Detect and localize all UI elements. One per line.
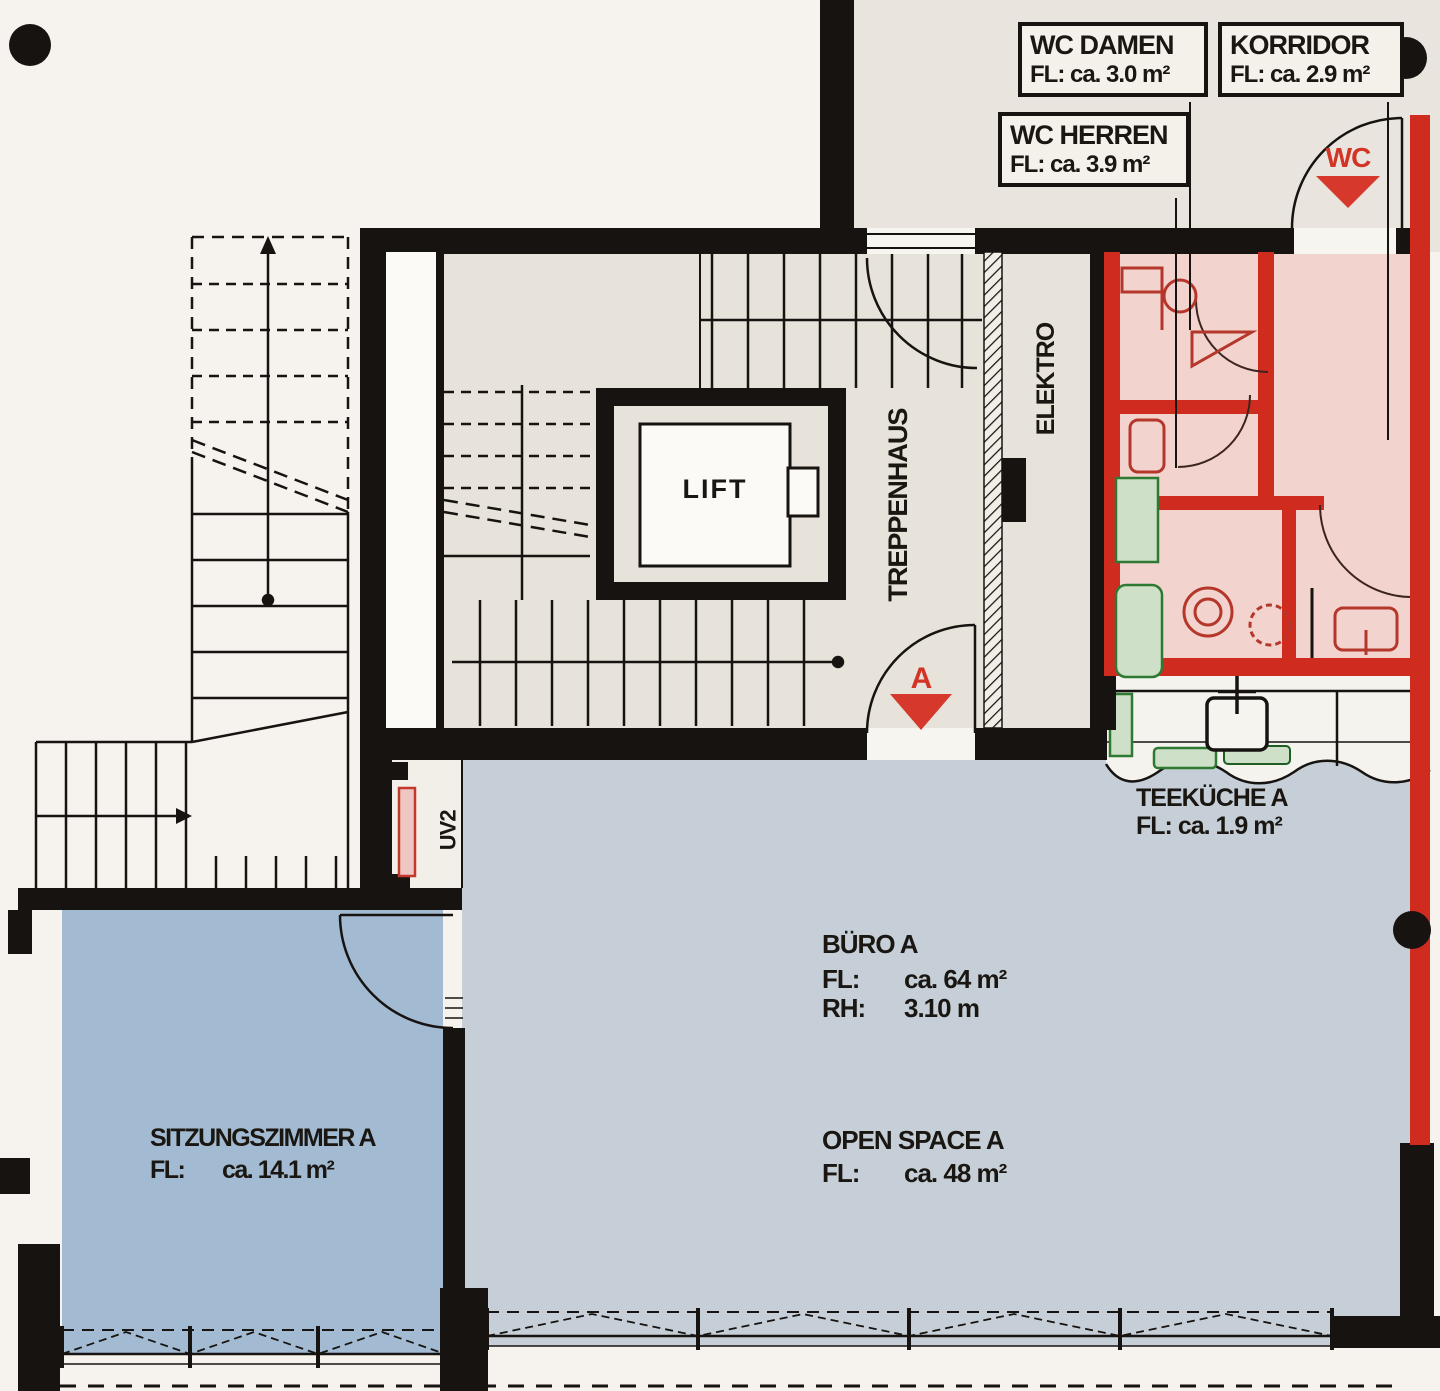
- open-space-fl-key: FL:: [822, 1159, 904, 1188]
- buero-rh-value: 3.10 m: [904, 993, 979, 1023]
- floor-plan: WC DAMEN FL: ca. 3.0 m² KORRIDOR FL: ca.…: [0, 0, 1440, 1391]
- window-bands: [60, 1308, 1402, 1386]
- teekueche-area: FL: ca. 1.9 m²: [1136, 812, 1288, 840]
- wc-green-units: [1116, 478, 1162, 677]
- label-box-wc-damen: WC DAMEN FL: ca. 3.0 m²: [1018, 22, 1208, 97]
- korridor-area: FL: ca. 2.9 m²: [1230, 61, 1392, 89]
- sitzungszimmer-fl-value: ca. 14.1 m²: [222, 1156, 333, 1184]
- label-box-wc-herren: WC HERREN FL: ca. 3.9 m²: [998, 112, 1190, 187]
- wall-cavity: [386, 252, 436, 728]
- treppenhaus-label: TREPPENHAUS: [883, 345, 913, 665]
- uv2-panel-icon: [399, 788, 415, 876]
- teekueche-counter: [1106, 668, 1430, 783]
- teekueche-label: TEEKÜCHE A FL: ca. 1.9 m²: [1136, 784, 1288, 840]
- uv2-label: UV2: [437, 790, 462, 870]
- buero-rh-key: RH:: [822, 994, 904, 1023]
- wc-herren-name: WC HERREN: [1010, 120, 1178, 151]
- arrow-a-label: A: [890, 662, 952, 696]
- sitzungszimmer-label: SITZUNGSZIMMER A FL:ca. 14.1 m²: [150, 1124, 375, 1184]
- lift-label: LIFT: [653, 474, 777, 504]
- wc-damen-area: FL: ca. 3.0 m²: [1030, 61, 1196, 89]
- open-space-fl-value: ca. 48 m²: [904, 1158, 1006, 1188]
- buero-fl-value: ca. 64 m²: [904, 964, 1006, 994]
- buero-name: BÜRO A: [822, 930, 1006, 959]
- doors: [340, 118, 1402, 1028]
- buero-fl-key: FL:: [822, 965, 904, 994]
- arrow-wc-triangle-icon: [1316, 176, 1380, 208]
- open-space-label: OPEN SPACE A FL:ca. 48 m²: [822, 1126, 1006, 1188]
- toilet-icon: [1184, 588, 1232, 636]
- sitzungszimmer-name: SITZUNGSZIMMER A: [150, 1124, 375, 1152]
- sink-icon: [1130, 420, 1164, 472]
- teekueche-name: TEEKÜCHE A: [1136, 784, 1288, 812]
- external-stairs: [36, 236, 348, 888]
- elektro-label: ELEKTRO: [1032, 279, 1060, 479]
- toilet-icon: [1195, 599, 1221, 625]
- sitzungszimmer-fl-key: FL:: [150, 1156, 222, 1184]
- toilet-icon: [1164, 280, 1196, 312]
- open-space-name: OPEN SPACE A: [822, 1126, 1006, 1155]
- arrow-a-triangle-icon: [890, 694, 952, 730]
- wc-damen-name: WC DAMEN: [1030, 30, 1196, 61]
- korridor-name: KORRIDOR: [1230, 30, 1392, 61]
- kitchen-green-unit-icon: [1154, 748, 1216, 768]
- toilet-icon: [1122, 268, 1162, 292]
- glazing-marks: [445, 998, 463, 1018]
- wc-herren-area: FL: ca. 3.9 m²: [1010, 151, 1178, 179]
- elektro-partition: [984, 252, 1002, 728]
- arrow-wc-label: WC: [1316, 142, 1380, 173]
- buero-label: BÜRO A FL:ca. 64 m² RH:3.10 m: [822, 930, 1006, 1023]
- sink-icon: [1192, 332, 1252, 366]
- label-box-korridor: KORRIDOR FL: ca. 2.9 m²: [1218, 22, 1404, 97]
